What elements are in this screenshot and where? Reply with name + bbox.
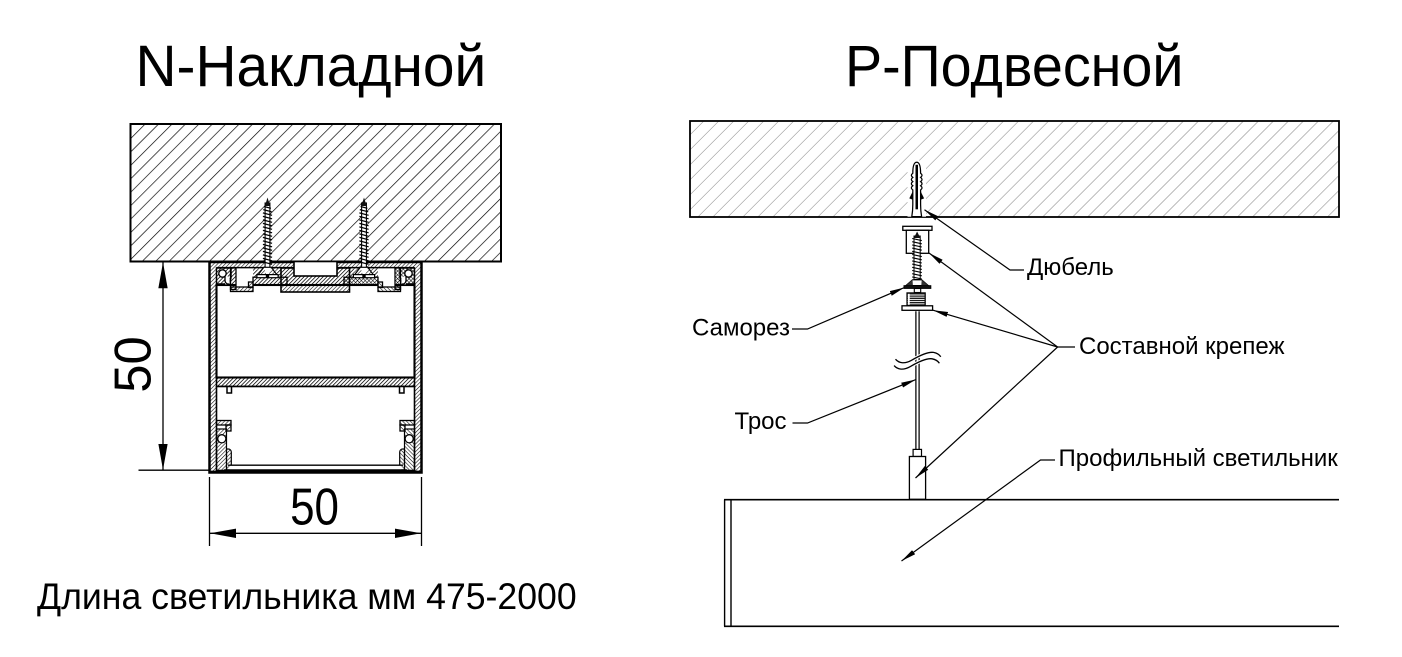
svg-text:Профильный светильник: Профильный светильник bbox=[1059, 445, 1339, 472]
svg-text:Составной крепеж: Составной крепеж bbox=[1079, 333, 1285, 360]
svg-text:N-Накладной: N-Накладной bbox=[136, 34, 487, 99]
svg-text:Длина светильника мм 475-2000: Длина светильника мм 475-2000 bbox=[37, 575, 577, 617]
svg-text:Р-Подвесной: Р-Подвесной bbox=[845, 35, 1183, 99]
svg-text:Трос: Трос bbox=[735, 408, 787, 435]
svg-text:50: 50 bbox=[290, 479, 339, 536]
svg-text:50: 50 bbox=[104, 336, 162, 392]
svg-text:Саморез: Саморез bbox=[692, 315, 790, 342]
svg-text:Дюбель: Дюбель bbox=[1027, 254, 1114, 281]
